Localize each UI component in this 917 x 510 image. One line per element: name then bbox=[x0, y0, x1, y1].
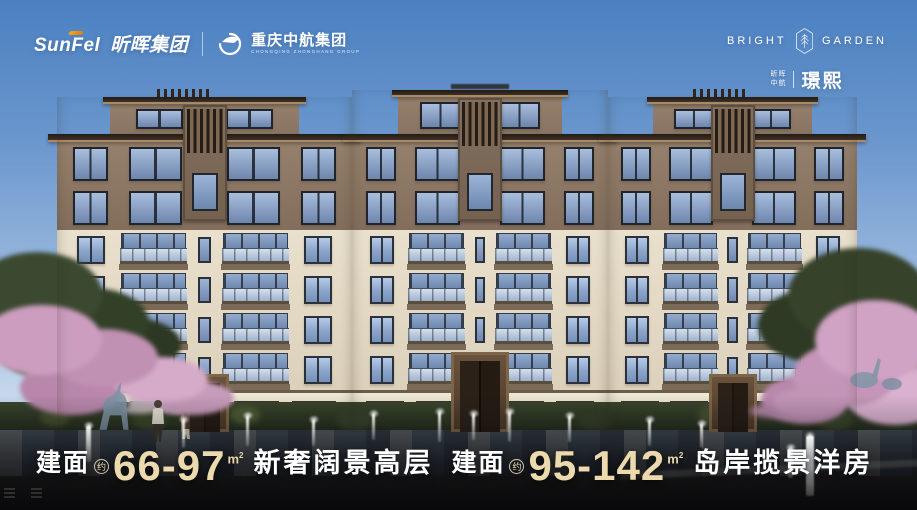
watermark-marks bbox=[4, 487, 42, 498]
wall-segment bbox=[291, 270, 301, 310]
wall-segment bbox=[554, 350, 563, 390]
wall-segment bbox=[608, 270, 622, 310]
sunfel-logo-latin: SunFel bbox=[34, 35, 100, 56]
brand-divider bbox=[793, 71, 794, 88]
window bbox=[814, 191, 844, 225]
wall-segment bbox=[335, 270, 352, 310]
tagline-highrise: 建面 约 66-97 m2 新奢阔景高层 bbox=[36, 441, 433, 483]
wall-segment bbox=[110, 186, 127, 230]
brand-pair-top: 昕晖 bbox=[770, 71, 786, 79]
balcony bbox=[221, 310, 290, 350]
building-center-wing bbox=[352, 90, 608, 432]
window bbox=[415, 191, 460, 225]
window bbox=[625, 316, 649, 344]
brand-group-pair: 昕晖 中航 bbox=[770, 71, 786, 88]
fountain-jet bbox=[438, 412, 441, 442]
wall-segment bbox=[397, 270, 406, 310]
balcony bbox=[221, 230, 290, 270]
fountain-jet bbox=[568, 416, 571, 442]
wall-segment bbox=[291, 310, 301, 350]
window bbox=[301, 191, 336, 225]
floor-row bbox=[57, 230, 352, 270]
tagline-flats: 建面 约 95-142 m2 岛岸揽景洋房 bbox=[451, 441, 873, 483]
wall-segment bbox=[398, 186, 413, 230]
floor-row bbox=[352, 230, 608, 270]
product-desc: 新奢阔景高层 bbox=[253, 441, 433, 483]
balcony bbox=[662, 270, 719, 310]
window bbox=[625, 276, 649, 304]
window bbox=[304, 316, 332, 344]
fountain-jet bbox=[472, 414, 475, 440]
zhonghang-en: CHONGQING ZHONGHANG GROUP bbox=[251, 50, 360, 55]
project-name: 璟熙 bbox=[801, 66, 843, 93]
approx-circle: 约 bbox=[509, 459, 524, 474]
wall-segment bbox=[652, 310, 661, 350]
window bbox=[669, 147, 713, 181]
balcony bbox=[221, 350, 290, 390]
fountain-jet bbox=[372, 414, 375, 440]
window bbox=[566, 316, 591, 344]
wall-segment bbox=[554, 310, 563, 350]
wall-segment bbox=[653, 186, 667, 230]
window bbox=[227, 147, 279, 181]
window bbox=[720, 230, 746, 270]
window bbox=[129, 191, 181, 225]
wall-segment bbox=[338, 186, 352, 230]
wall-segment bbox=[596, 186, 608, 230]
roof-eave bbox=[103, 97, 307, 104]
window bbox=[73, 147, 108, 181]
area-range: 95-142 bbox=[528, 449, 665, 483]
wall-segment bbox=[653, 142, 667, 186]
window bbox=[720, 270, 746, 310]
window bbox=[814, 147, 844, 181]
window bbox=[751, 109, 791, 129]
brand-en-right: GARDEN bbox=[822, 35, 887, 47]
window bbox=[366, 191, 397, 225]
balcony bbox=[119, 230, 188, 270]
wall-segment bbox=[57, 142, 71, 186]
balcony bbox=[494, 270, 553, 310]
window bbox=[226, 109, 273, 129]
brand-pair-bottom: 中航 bbox=[770, 80, 786, 88]
wall-segment bbox=[608, 230, 622, 270]
brand-en-left: BRIGHT bbox=[727, 35, 787, 47]
window bbox=[752, 191, 796, 225]
louver-bay bbox=[458, 98, 502, 221]
wall-segment bbox=[282, 186, 299, 230]
wall-segment bbox=[108, 230, 118, 270]
window bbox=[420, 102, 461, 129]
window bbox=[304, 356, 332, 384]
wall-segment bbox=[110, 142, 127, 186]
wall-segment bbox=[352, 270, 367, 310]
wall-segment bbox=[291, 230, 301, 270]
wall-segment bbox=[596, 142, 608, 186]
window bbox=[625, 356, 649, 384]
window bbox=[564, 191, 595, 225]
window bbox=[669, 191, 713, 225]
balcony bbox=[407, 270, 466, 310]
wall-segment bbox=[593, 270, 608, 310]
zhonghang-logo-icon bbox=[217, 31, 243, 57]
wall-segment bbox=[652, 350, 661, 390]
window bbox=[621, 191, 651, 225]
area-unit: m2 bbox=[667, 451, 683, 466]
real-estate-poster: SunFel 昕晖集团 | 重庆中航集团 CHONGQING ZHONGHANG… bbox=[0, 0, 917, 510]
area-unit: m2 bbox=[227, 451, 243, 466]
window bbox=[370, 276, 395, 304]
balcony bbox=[119, 270, 188, 310]
floor-row bbox=[352, 270, 608, 310]
floor-row bbox=[352, 310, 608, 350]
window bbox=[566, 356, 591, 384]
wall-segment bbox=[608, 350, 622, 390]
wall-segment bbox=[542, 97, 562, 134]
window bbox=[366, 147, 397, 181]
wall-segment bbox=[352, 142, 364, 186]
wall-segment bbox=[110, 104, 134, 134]
window bbox=[129, 147, 181, 181]
window bbox=[467, 270, 493, 310]
wall-segment bbox=[397, 230, 406, 270]
zhonghang-logo: 重庆中航集团 CHONGQING ZHONGHANG GROUP bbox=[217, 31, 360, 57]
wall-segment bbox=[108, 270, 118, 310]
cream-facade-floors bbox=[57, 230, 352, 390]
zhonghang-cn: 重庆中航集团 bbox=[251, 33, 360, 48]
roof-eave bbox=[647, 97, 819, 104]
sunfel-logo-cn: 昕晖集团 bbox=[110, 35, 188, 56]
window bbox=[566, 276, 591, 304]
wall-segment bbox=[846, 142, 857, 186]
wall-segment bbox=[547, 186, 562, 230]
zhonghang-logo-text: 重庆中航集团 CHONGQING ZHONGHANG GROUP bbox=[251, 33, 360, 55]
balcony bbox=[746, 230, 803, 270]
window bbox=[467, 310, 493, 350]
balcony bbox=[662, 230, 719, 270]
project-brand-badge: BRIGHT GARDEN 昕晖 中航 璟熙 bbox=[727, 20, 887, 93]
rooftop-sign bbox=[451, 84, 509, 89]
product-desc: 岛岸揽景洋房 bbox=[693, 441, 873, 483]
window bbox=[189, 270, 220, 310]
wall-segment bbox=[798, 186, 812, 230]
wall-segment bbox=[335, 230, 352, 270]
louver-bay bbox=[711, 105, 755, 221]
window bbox=[500, 191, 545, 225]
wall-segment bbox=[593, 310, 608, 350]
logo-bar: SunFel 昕晖集团 | 重庆中航集团 CHONGQING ZHONGHANG… bbox=[34, 30, 360, 57]
window bbox=[415, 147, 460, 181]
window bbox=[499, 102, 540, 129]
wall-segment bbox=[335, 350, 352, 390]
wall-segment bbox=[397, 310, 406, 350]
wall-segment bbox=[108, 310, 118, 350]
window bbox=[370, 236, 395, 264]
balcony bbox=[221, 270, 290, 310]
wall-segment bbox=[352, 350, 367, 390]
balcony bbox=[407, 230, 466, 270]
louver-bay bbox=[183, 105, 227, 221]
wall-segment bbox=[652, 230, 661, 270]
wall-segment bbox=[275, 104, 299, 134]
wall-segment bbox=[352, 230, 367, 270]
wall-segment bbox=[291, 350, 301, 390]
grand-entrance-portal bbox=[451, 352, 509, 432]
window bbox=[301, 147, 336, 181]
window bbox=[500, 147, 545, 181]
wall-segment bbox=[846, 186, 857, 230]
window bbox=[674, 109, 714, 129]
wall-segment bbox=[608, 310, 622, 350]
roof-eave bbox=[392, 90, 569, 97]
brand-chinese-row: 昕晖 中航 璟熙 bbox=[727, 66, 887, 93]
wall-segment bbox=[608, 186, 619, 230]
blossom-bush-right bbox=[772, 388, 842, 418]
wall-segment bbox=[352, 186, 364, 230]
area-range: 66-97 bbox=[113, 449, 225, 483]
wall-segment bbox=[798, 142, 812, 186]
area-label: 建面 bbox=[36, 443, 90, 483]
logo-divider: | bbox=[202, 32, 203, 56]
wall-segment bbox=[554, 270, 563, 310]
entrance-portal bbox=[709, 374, 757, 432]
wall-segment bbox=[593, 350, 608, 390]
wall-segment bbox=[653, 104, 673, 134]
window bbox=[564, 147, 595, 181]
wall-segment bbox=[398, 142, 413, 186]
window bbox=[136, 109, 183, 129]
wall-segment bbox=[57, 186, 71, 230]
wall-segment bbox=[338, 142, 352, 186]
fountain-jet bbox=[508, 412, 511, 442]
sunfel-logo: SunFel 昕晖集团 bbox=[34, 30, 188, 57]
deer-sculpture-right bbox=[846, 352, 906, 394]
balcony bbox=[662, 310, 719, 350]
window bbox=[467, 230, 493, 270]
wall-segment bbox=[608, 142, 619, 186]
wall-segment bbox=[335, 310, 352, 350]
wall-segment bbox=[397, 350, 406, 390]
window bbox=[189, 310, 220, 350]
residential-building-render bbox=[57, 97, 857, 432]
window bbox=[227, 191, 279, 225]
balcony bbox=[119, 310, 188, 350]
area-label: 建面 bbox=[451, 443, 505, 483]
window bbox=[752, 147, 796, 181]
window bbox=[77, 236, 105, 264]
deer-sculpture-left bbox=[92, 380, 136, 432]
wall-segment bbox=[554, 230, 563, 270]
balcony bbox=[494, 230, 553, 270]
window bbox=[370, 316, 395, 344]
window bbox=[73, 191, 108, 225]
roof-pergola bbox=[157, 89, 209, 97]
window bbox=[625, 236, 649, 264]
wall-segment bbox=[793, 104, 813, 134]
window bbox=[189, 230, 220, 270]
wall-segment bbox=[652, 270, 661, 310]
balcony bbox=[494, 310, 553, 350]
wall-segment bbox=[804, 350, 813, 390]
wall-segment bbox=[282, 142, 299, 186]
taglines: 建面 约 66-97 m2 新奢阔景高层 建面 约 95-142 m2 岛岸揽景… bbox=[36, 441, 873, 483]
window bbox=[566, 236, 591, 264]
window bbox=[304, 276, 332, 304]
wall-segment bbox=[398, 97, 418, 134]
wall-segment bbox=[352, 310, 367, 350]
balcony bbox=[407, 310, 466, 350]
window bbox=[621, 147, 651, 181]
lozenge-tree-emblem bbox=[796, 20, 813, 62]
wall-segment bbox=[547, 142, 562, 186]
window bbox=[304, 236, 332, 264]
wall-segment bbox=[593, 230, 608, 270]
window bbox=[720, 310, 746, 350]
approx-circle: 约 bbox=[94, 459, 109, 474]
brand-english-row: BRIGHT GARDEN bbox=[727, 20, 887, 62]
window bbox=[370, 356, 395, 384]
